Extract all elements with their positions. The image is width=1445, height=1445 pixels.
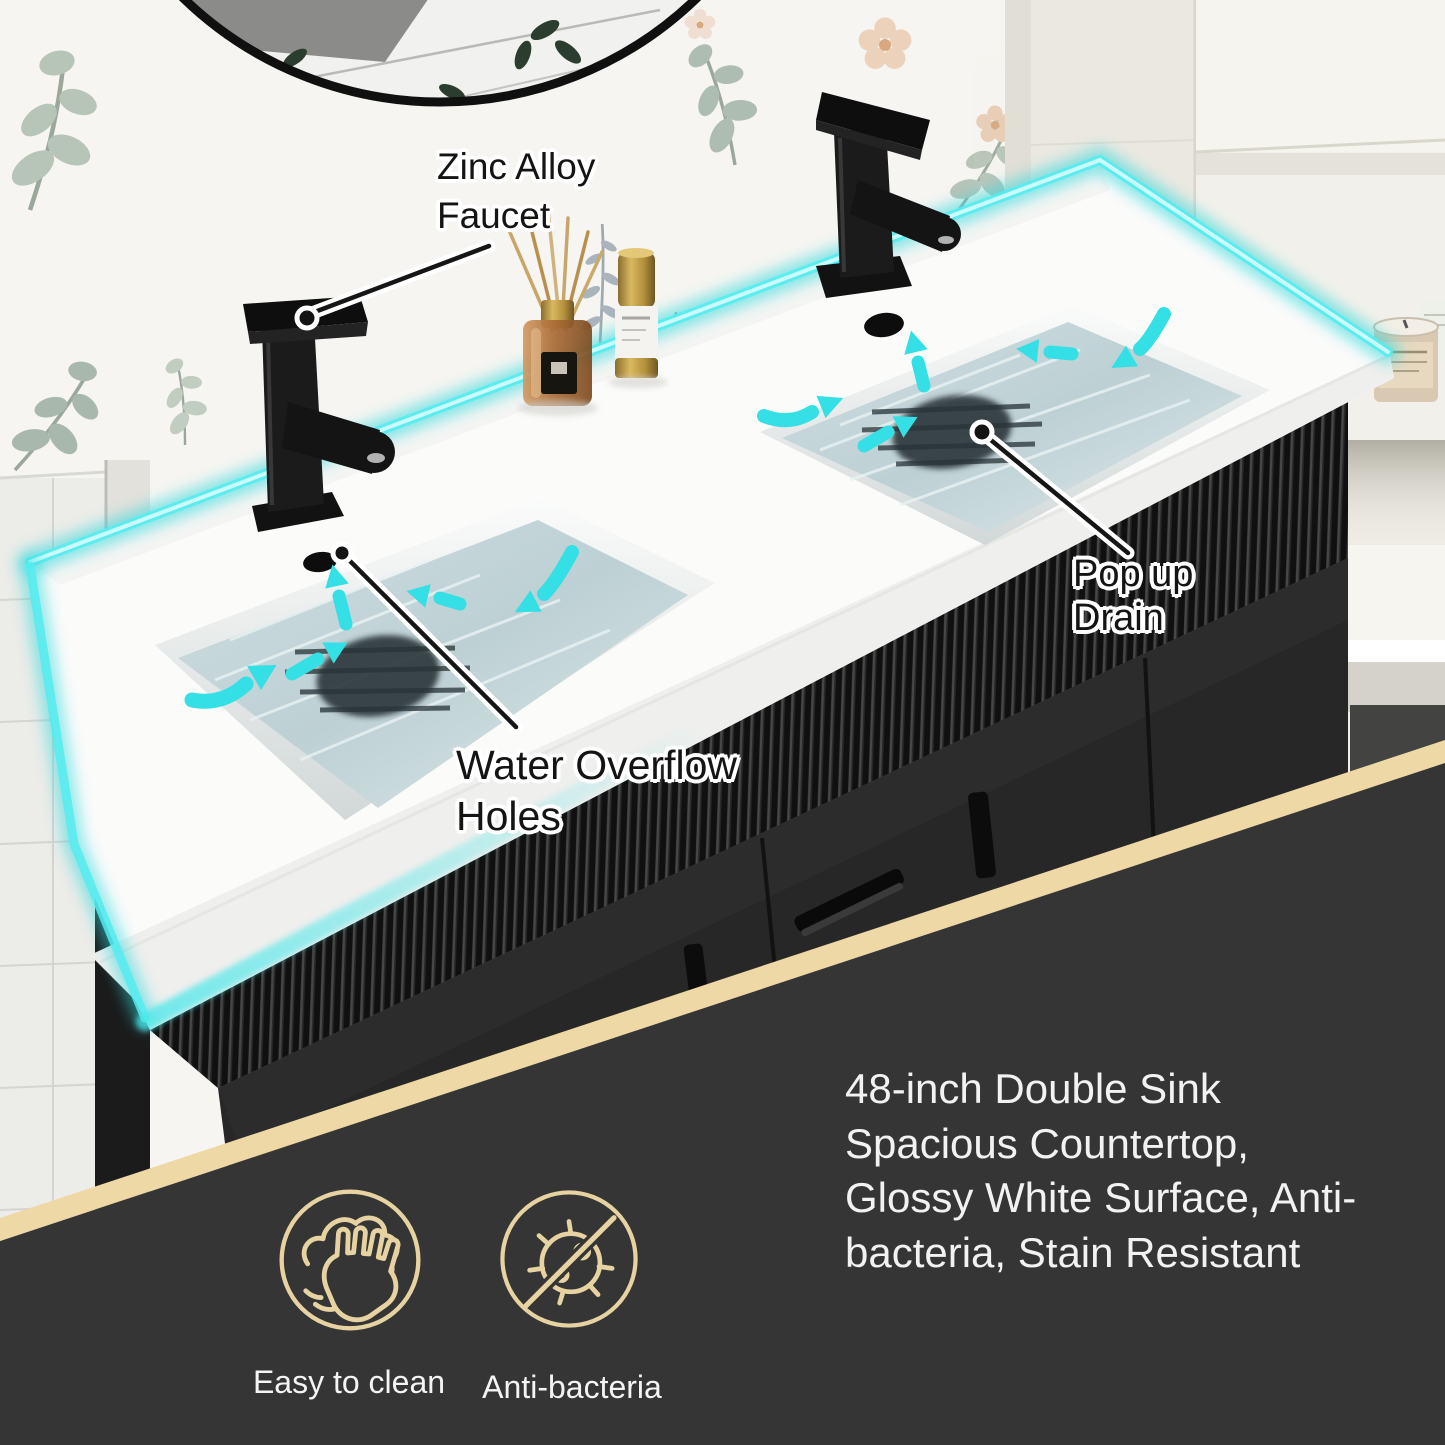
callout-dot-faucet	[297, 308, 317, 328]
callout-dot-drain	[972, 422, 992, 442]
callout-dot-overflow	[333, 544, 351, 562]
feature-headline: 48-inch Double Sink Spacious Countertop,…	[845, 1062, 1380, 1280]
callout-water-overflow-holes: Water Overflow Holes	[456, 740, 801, 842]
no-bacteria-icon	[494, 1184, 648, 1338]
upper-cabinet	[1196, 0, 1445, 152]
wipe-hand-icon	[273, 1183, 427, 1337]
badge-easy-to-clean: Easy to clean	[229, 1364, 469, 1401]
callout-pop-up-drain: Pop up Drain	[1073, 552, 1253, 641]
product-infographic: Zinc Alloy Faucet Pop up Drain Water Ove…	[0, 0, 1445, 1445]
badge-anti-bacteria: Anti-bacteria	[452, 1369, 692, 1406]
callout-zinc-alloy-faucet: Zinc Alloy Faucet	[437, 142, 677, 240]
